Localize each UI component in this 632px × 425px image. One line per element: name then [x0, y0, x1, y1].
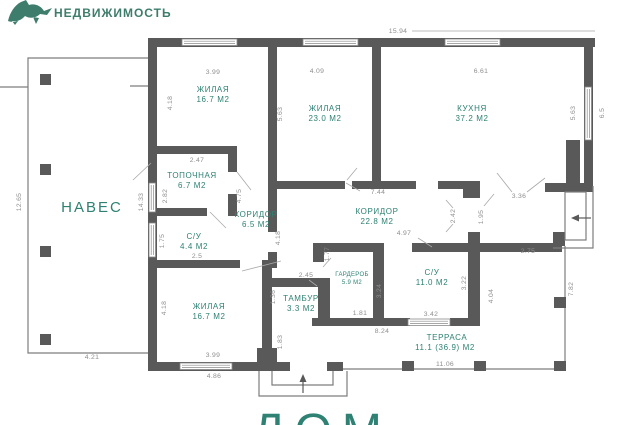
column-post — [402, 361, 414, 371]
dim-canopy-bottom: 4.21 — [85, 354, 99, 361]
dim-living3-left: 4.18 — [161, 301, 168, 315]
room-area-living2: 23.0 М2 — [308, 114, 341, 123]
entrance-arrowhead — [571, 215, 579, 222]
window — [585, 87, 592, 140]
wall — [463, 189, 480, 198]
room-label-wardrobe: ГАРДЕРОБ — [335, 272, 368, 278]
dim-corridor-main-len: 7.44 — [371, 189, 385, 196]
dim-hall-width: 2.45 — [299, 272, 313, 279]
window — [303, 39, 358, 46]
dim-vestibule-door: 1.83 — [277, 335, 284, 349]
wall — [545, 183, 593, 192]
dim-terrace-width: 2.75 — [521, 248, 535, 255]
dim-living2-left: 5.63 — [277, 107, 284, 121]
room-label-living2: ЖИЛАЯ — [309, 104, 342, 113]
room-label-terrace: ТЕРРАСА — [427, 333, 468, 342]
room-label-kitchen: КУХНЯ — [457, 104, 487, 113]
dim-boiler-wall: 4.75 — [236, 189, 243, 203]
column-post — [474, 361, 486, 371]
dim-kitchen-right-inner: 5.63 — [570, 106, 577, 120]
room-label-living3: ЖИЛАЯ — [193, 302, 226, 311]
dim-wc-big-right: 3.22 — [461, 276, 468, 290]
dim-living1-left: 4.18 — [167, 96, 174, 110]
wall — [157, 208, 207, 216]
wall — [450, 318, 480, 326]
room-area-terrace: 11.1 (36.9) М2 — [415, 343, 475, 352]
window — [445, 39, 500, 46]
room-area-living3: 16.7 М2 — [192, 312, 225, 321]
room-area-boiler: 6.7 М2 — [178, 181, 206, 190]
floor-plan-page: НЕДВИЖИМОСТЬ — [0, 0, 632, 425]
column-post — [554, 297, 566, 308]
wall — [268, 47, 277, 158]
column-post — [554, 361, 566, 371]
room-area-wardrobe: 5.9 М2 — [342, 280, 363, 286]
wall — [438, 181, 480, 189]
wall — [566, 140, 580, 185]
wall — [468, 232, 480, 326]
wall — [553, 232, 565, 246]
dim-opening-b: 1.95 — [478, 210, 485, 224]
dim-opening-a: 2.42 — [450, 209, 457, 223]
floor-plan: НЕДВИЖИМОСТЬ — [0, 0, 632, 425]
room-label-canopy: НАВЕС — [61, 199, 123, 216]
dim-wc-big-outer: 4.04 — [488, 289, 495, 303]
room-area-living1: 16.7 М2 — [196, 95, 229, 104]
dim-corridor-small-len: 4.18 — [275, 231, 282, 245]
logo-fox-icon — [8, 0, 52, 25]
dim-living2-top: 4.09 — [310, 68, 324, 75]
room-label-living1: ЖИЛАЯ — [197, 85, 230, 94]
dim-wardrobe-bottom: 1.81 — [353, 310, 367, 317]
room-label-corridor-small: КОРИДОР — [234, 210, 277, 219]
dim-terrace-right: 7.82 — [568, 282, 575, 296]
dim-vestibule-left: 1.36 — [270, 290, 277, 304]
dim-boiler-top: 2.47 — [190, 157, 204, 164]
room-label-boiler: ТОПОЧНАЯ — [167, 171, 217, 180]
window — [180, 363, 232, 370]
column-post — [40, 164, 51, 175]
window — [149, 223, 156, 257]
brand-name: НЕДВИЖИМОСТЬ — [54, 6, 172, 20]
wall — [327, 362, 343, 371]
column-post — [40, 246, 51, 257]
wall — [312, 278, 330, 287]
wall — [228, 146, 237, 172]
dim-canopy-left: 12.65 — [16, 193, 23, 212]
dim-wc-small-bottom: 2.5 — [192, 253, 202, 260]
south-entrance-porch — [259, 371, 347, 396]
window — [149, 183, 156, 212]
entrance-arrowhead — [300, 374, 307, 382]
dim-wardrobe-door: 1.77 — [324, 247, 331, 261]
dim-wardrobe-right: 3.24 — [376, 284, 383, 298]
dim-living3-bottom: 3.99 — [206, 352, 220, 359]
wall — [157, 146, 233, 154]
room-label-wc-big: С/У — [425, 268, 440, 277]
wall — [277, 362, 290, 371]
room-label-wc-small: С/У — [187, 232, 202, 241]
porch-step-inner — [565, 192, 586, 240]
room-area-wc-big: 11.0 М2 — [416, 278, 449, 287]
logo: НЕДВИЖИМОСТЬ — [8, 0, 172, 25]
wall — [277, 181, 345, 189]
wall — [412, 243, 562, 252]
wall — [262, 260, 272, 362]
dim-living3-bottom-outer: 4.86 — [207, 373, 221, 380]
room-label-vestibule: ТАМБУР — [283, 294, 319, 303]
room-area-vestibule: 3.3 М2 — [287, 304, 315, 313]
room-area-corridor-small: 6.5 М2 — [242, 220, 270, 229]
column-post — [40, 74, 51, 85]
dim-terrace-bottom: 11.06 — [436, 361, 454, 368]
dim-wc-small-left: 1.75 — [159, 234, 166, 248]
dim-boiler-left: 2.82 — [162, 189, 169, 203]
dim-house-left: 14.33 — [138, 193, 145, 212]
room-area-corridor-main: 22.8 М2 — [360, 217, 393, 226]
dim-terrace-inner: 8.24 — [375, 328, 389, 335]
dim-kitchen-right-outer: 6.5 — [599, 108, 606, 118]
room-area-kitchen: 37.2 М2 — [455, 114, 488, 123]
window — [182, 39, 237, 46]
wall — [312, 318, 410, 326]
column-post — [40, 334, 51, 345]
wall — [372, 47, 381, 189]
window — [408, 319, 450, 326]
wall — [157, 260, 240, 268]
dim-kitchen-top: 6.61 — [474, 68, 488, 75]
dim-wc-big-door: 4.97 — [397, 230, 411, 237]
dim-living1-top: 3.99 — [206, 69, 220, 76]
plan-title: ДОМ — [252, 405, 392, 425]
wall — [352, 181, 416, 189]
room-area-wc-small: 4.4 М2 — [180, 242, 208, 251]
room-label-corridor-main: КОРИДОР — [355, 207, 398, 216]
dim-wc-big-bottom: 3.42 — [424, 311, 438, 318]
dim-overall-top: 15.94 — [389, 28, 408, 35]
dim-kitchen-opening: 3.36 — [512, 193, 526, 200]
